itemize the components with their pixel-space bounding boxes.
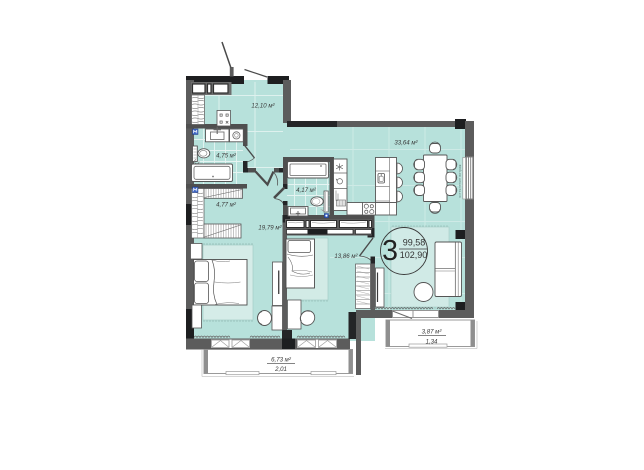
svg-text:4,77 м²: 4,77 м² [216,202,237,209]
svg-text:99,58: 99,58 [403,238,426,248]
svg-text:19,79 м²: 19,79 м² [258,225,282,232]
svg-text:33,64 м²: 33,64 м² [394,140,418,147]
svg-text:102,90: 102,90 [400,250,428,260]
svg-text:4,75 м²: 4,75 м² [216,153,237,160]
svg-text:12,10 м²: 12,10 м² [251,103,275,110]
svg-text:2,01: 2,01 [274,366,287,373]
svg-text:3: 3 [382,235,398,267]
svg-text:1,34: 1,34 [426,339,438,346]
svg-text:6,73 м²: 6,73 м² [271,357,292,364]
svg-text:4,17 м²: 4,17 м² [296,187,317,194]
svg-text:остекление витраж: остекление витраж [458,164,462,198]
svg-text:3,87 м²: 3,87 м² [422,329,443,336]
svg-text:13,86 м²: 13,86 м² [334,253,358,260]
